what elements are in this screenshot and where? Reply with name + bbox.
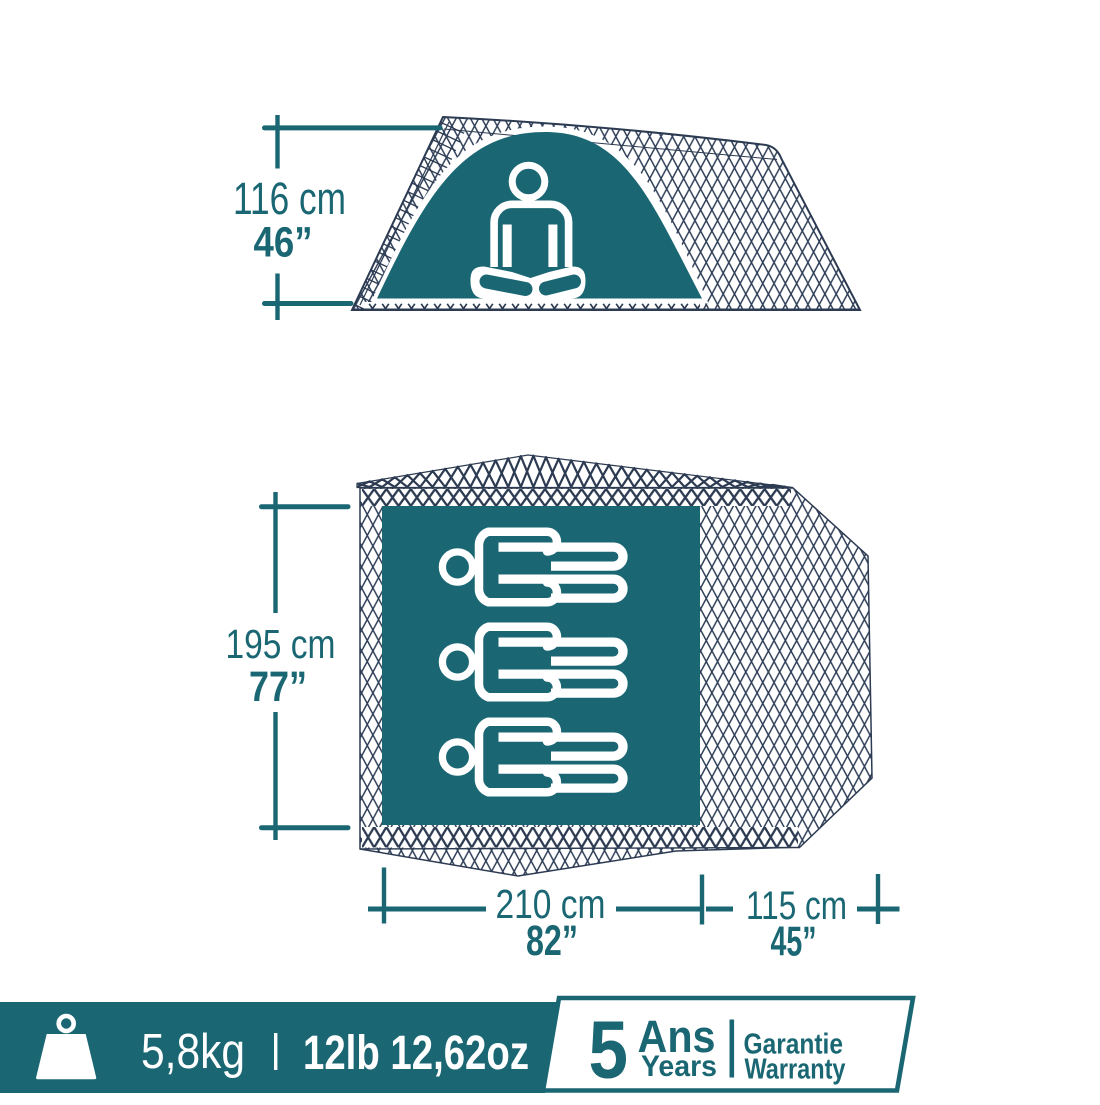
svg-text:82”: 82”	[526, 917, 578, 965]
svg-text:Warranty: Warranty	[745, 1054, 846, 1086]
svg-text:116 cm: 116 cm	[233, 173, 346, 224]
svg-text:77”: 77”	[249, 663, 307, 711]
svg-text:5,8kg: 5,8kg	[141, 1025, 245, 1079]
svg-text:Years: Years	[641, 1050, 717, 1083]
svg-text:195 cm: 195 cm	[226, 621, 336, 667]
svg-text:12lb 12,62oz: 12lb 12,62oz	[303, 1027, 529, 1080]
svg-text:45”: 45”	[771, 918, 817, 965]
svg-text:46”: 46”	[254, 219, 313, 267]
svg-text:5: 5	[589, 1005, 629, 1096]
